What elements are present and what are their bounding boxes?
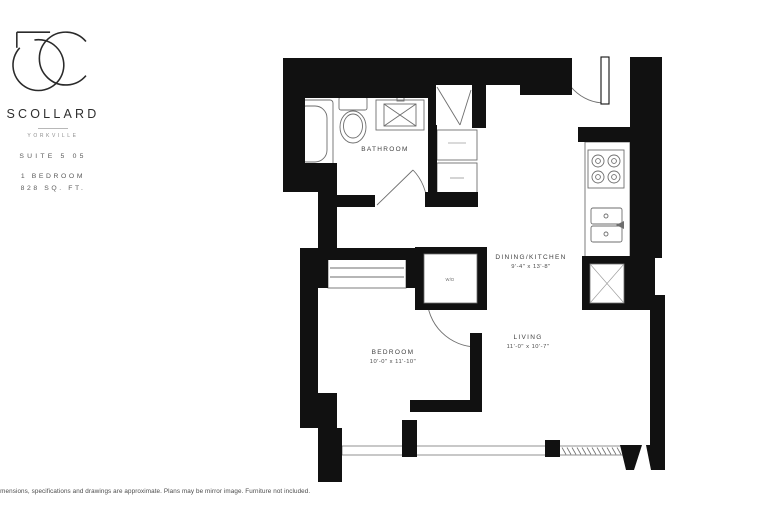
bedroom-label: BEDROOM bbox=[372, 349, 415, 356]
living-dimensions: 11'-0" x 10'-7" bbox=[507, 344, 550, 350]
kitchen-counter bbox=[585, 142, 630, 257]
bottom-windows bbox=[342, 446, 625, 455]
fridge bbox=[590, 264, 624, 303]
floorplan-disclaimer: Dimensions, specifications and drawings … bbox=[0, 488, 310, 495]
living-label: LIVING bbox=[513, 334, 542, 341]
floorplan-page: { "branding": { "monogram": "5C", "name"… bbox=[0, 0, 760, 505]
bedroom-dimensions: 10'-0" x 11'-10" bbox=[370, 359, 416, 365]
kitchen-sink bbox=[591, 208, 624, 242]
dining-kitchen-label: DINING/KITCHEN bbox=[495, 254, 566, 261]
bathroom-door-swing bbox=[377, 170, 427, 205]
laundry-closet-label: W/D bbox=[445, 277, 454, 282]
toilet bbox=[339, 97, 367, 143]
cooktop bbox=[588, 150, 624, 188]
entry-closet bbox=[437, 87, 471, 125]
dining-kitchen-dimensions: 9'-4" x 13'-8" bbox=[511, 264, 550, 270]
floor-plan: BATHROOM DINING/KITCHEN 9'-4" x 13'-8" B… bbox=[0, 0, 760, 505]
stacked-closet-boxes bbox=[437, 130, 477, 194]
bathroom-label: BATHROOM bbox=[361, 146, 408, 153]
entry-door-leaf bbox=[601, 57, 609, 104]
vanity-sink bbox=[376, 96, 424, 130]
bedroom-closet bbox=[328, 258, 406, 288]
